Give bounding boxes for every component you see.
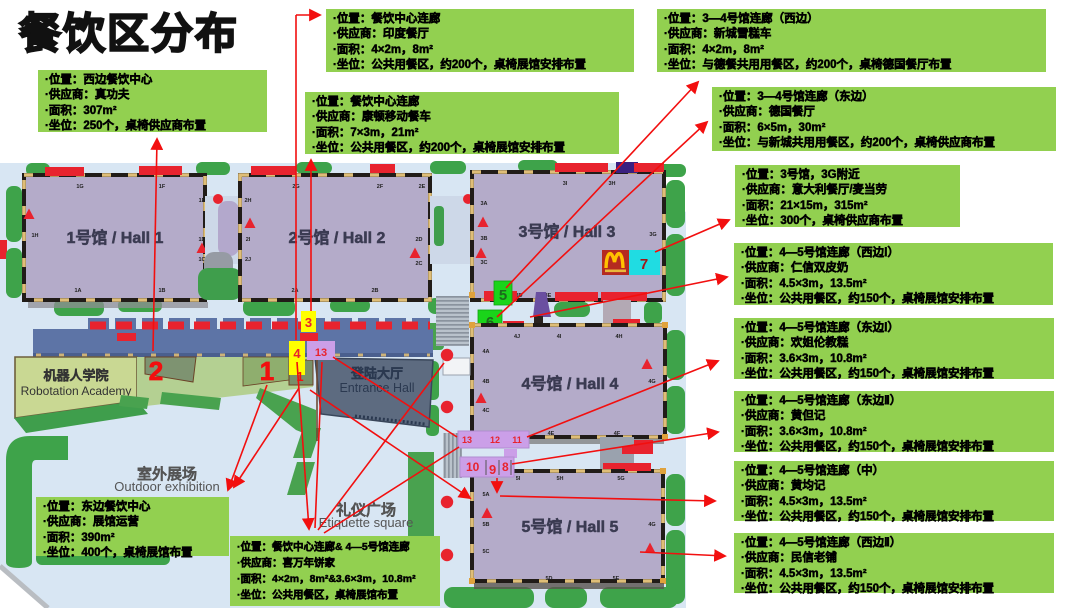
svg-text:13: 13	[462, 435, 472, 445]
svg-text:1A: 1A	[74, 288, 81, 294]
svg-text:2号馆 / Hall 2: 2号馆 / Hall 2	[289, 228, 386, 247]
svg-text:5号馆 / Hall 5: 5号馆 / Hall 5	[522, 517, 619, 536]
svg-text:3H: 3H	[608, 181, 615, 187]
svg-text:4H: 4H	[615, 334, 622, 340]
svg-text:4G: 4G	[648, 522, 655, 528]
svg-text:Entrance Hall: Entrance Hall	[339, 381, 414, 395]
svg-text:2J: 2J	[245, 257, 251, 263]
svg-text:2B: 2B	[371, 288, 378, 294]
svg-text:5D: 5D	[545, 576, 552, 582]
svg-text:1E: 1E	[199, 198, 206, 204]
svg-text:1F: 1F	[159, 184, 166, 190]
svg-text:Outdoor exhibition: Outdoor exhibition	[114, 479, 220, 494]
svg-text:4B: 4B	[482, 379, 489, 385]
svg-text:5H: 5H	[556, 476, 563, 482]
svg-text:5G: 5G	[617, 476, 624, 482]
svg-text:1号馆 / Hall 1: 1号馆 / Hall 1	[67, 228, 164, 247]
svg-text:4I: 4I	[557, 334, 562, 340]
svg-text:4号馆 / Hall 4: 4号馆 / Hall 4	[522, 374, 619, 393]
svg-text:5I: 5I	[516, 476, 521, 482]
svg-text:3B: 3B	[480, 236, 487, 242]
svg-text:5E: 5E	[613, 576, 620, 582]
svg-text:4C: 4C	[482, 408, 489, 414]
svg-text:4G: 4G	[648, 379, 655, 385]
svg-text:Robotation Academy: Robotation Academy	[21, 384, 132, 398]
svg-text:2H: 2H	[244, 198, 251, 204]
svg-text:12: 12	[490, 435, 500, 445]
svg-text:13: 13	[315, 347, 327, 359]
svg-text:3: 3	[305, 315, 312, 330]
svg-text:2I: 2I	[246, 237, 251, 243]
svg-text:1B: 1B	[158, 288, 165, 294]
svg-text:11: 11	[512, 435, 522, 445]
svg-text:9: 9	[489, 462, 496, 477]
svg-text:8: 8	[502, 460, 509, 474]
svg-text:1: 1	[260, 356, 274, 386]
svg-text:3C: 3C	[480, 260, 487, 266]
svg-text:2E: 2E	[419, 184, 426, 190]
svg-text:4F: 4F	[614, 431, 621, 437]
svg-text:3号馆 / Hall 3: 3号馆 / Hall 3	[519, 222, 616, 241]
svg-text:3G: 3G	[649, 232, 656, 238]
svg-text:2C: 2C	[415, 261, 422, 267]
svg-text:7: 7	[640, 256, 648, 273]
svg-text:3A: 3A	[480, 201, 487, 207]
svg-text:2: 2	[149, 356, 163, 386]
svg-text:2D: 2D	[415, 237, 422, 243]
svg-text:1G: 1G	[76, 184, 83, 190]
svg-text:4E: 4E	[548, 431, 555, 437]
svg-text:5: 5	[499, 287, 507, 304]
svg-text:5B: 5B	[482, 522, 489, 528]
svg-text:1H: 1H	[31, 233, 38, 239]
svg-text:4J: 4J	[514, 334, 520, 340]
svg-text:2A: 2A	[291, 288, 298, 294]
svg-text:10: 10	[466, 460, 480, 474]
svg-text:4A: 4A	[482, 349, 489, 355]
svg-text:5A: 5A	[482, 492, 489, 498]
svg-text:5C: 5C	[482, 549, 489, 555]
svg-text:4: 4	[293, 346, 301, 361]
svg-text:机器人学院: 机器人学院	[43, 368, 108, 383]
svg-text:3I: 3I	[563, 181, 568, 187]
svg-text:1D: 1D	[198, 237, 205, 243]
svg-text:2F: 2F	[377, 184, 384, 190]
